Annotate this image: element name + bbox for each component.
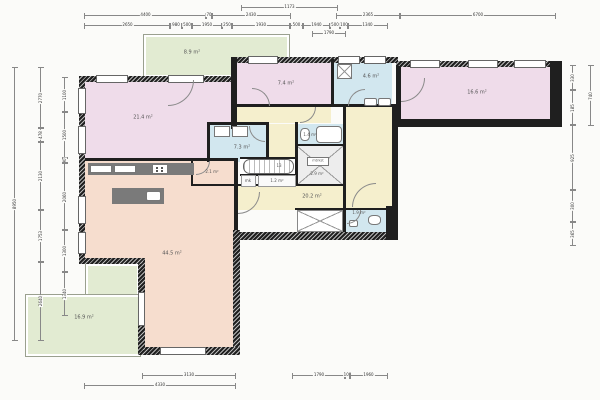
dimension: 6700: [401, 15, 555, 16]
dimension: 2650: [85, 25, 170, 26]
dimension: 2770: [40, 68, 41, 128]
wall: [343, 210, 346, 232]
stairs: [243, 159, 294, 174]
toilet-bowl: [368, 215, 381, 225]
meter-box-label: mk: [245, 179, 251, 183]
wall: [235, 232, 397, 240]
dimension: 1173: [242, 7, 337, 8]
washing-machine: [232, 126, 248, 137]
wall: [550, 61, 562, 127]
room-label-toilet: 1.9 m²: [352, 211, 365, 215]
window: [468, 60, 498, 68]
window: [160, 347, 206, 355]
dimension: 1790: [293, 375, 345, 376]
room-label-pantry: 2.1 m²: [205, 170, 218, 174]
room-label-hallway: 20.2 m²: [302, 195, 322, 200]
room-label-bath-tub: 1.4 m²: [303, 133, 316, 137]
room-label-storage: 2.9 m²: [310, 172, 323, 176]
dimension: 1500: [64, 112, 65, 158]
wall: [85, 158, 235, 161]
washing-machine: [214, 126, 230, 137]
dimension: 1940: [303, 25, 330, 26]
wall: [386, 206, 398, 240]
window: [338, 56, 360, 64]
wardrobe: [297, 210, 343, 232]
dimension: 740: [590, 66, 591, 125]
wall: [295, 144, 345, 146]
cooktop-burner: [156, 167, 158, 169]
floor-plan: 8.9 m² 21.4 m² 7.4 m² 4.6 m² 16.6 m² 7.3…: [0, 0, 600, 400]
room-bedroom-left: [85, 128, 209, 161]
wall: [191, 184, 235, 186]
dimension: 1950: [192, 25, 222, 26]
dimension: 185: [572, 90, 573, 125]
dimension: 925: [572, 125, 573, 190]
dimension: 2365: [337, 15, 399, 16]
room-label-shower-room: 7.3 m²: [234, 146, 250, 151]
wall: [343, 107, 346, 210]
window: [78, 88, 86, 114]
dimension: 2130: [40, 142, 41, 210]
stairs-count-label: 13: [276, 164, 281, 168]
wall: [207, 122, 269, 125]
window: [78, 126, 86, 154]
dimension: 300: [572, 190, 573, 222]
dimension: 478: [40, 128, 41, 142]
window: [78, 196, 86, 224]
window: [78, 232, 86, 254]
wall: [331, 59, 334, 107]
dimension: 4400: [85, 15, 206, 16]
wall: [79, 258, 143, 264]
washbasin: [378, 98, 391, 106]
dimension: 8950: [14, 68, 15, 340]
dimension: 1930: [232, 25, 290, 26]
dimension: 4330: [85, 385, 235, 386]
bathtub: [316, 126, 342, 143]
window: [138, 292, 145, 326]
dimension: 1753: [40, 210, 41, 262]
door-arc: [238, 192, 260, 214]
kitchen-cabinet: [114, 165, 136, 173]
wall: [266, 122, 269, 162]
wall: [233, 230, 240, 354]
room-label-terrace-top: 8.9 m²: [184, 51, 200, 56]
window: [248, 56, 278, 64]
wall: [398, 119, 556, 127]
wall: [207, 122, 210, 162]
dimension: 330: [572, 66, 573, 90]
dimension: 1100: [64, 78, 65, 112]
window: [364, 56, 386, 64]
meter-cabinet-label: mtrkst: [312, 159, 323, 163]
dimension: 1340: [348, 25, 387, 26]
kitchen-sink: [146, 191, 161, 201]
dimension: 2640: [40, 262, 41, 340]
room-label-closet: 1.2 m²: [270, 179, 283, 183]
dimension: 1340: [64, 272, 65, 315]
room-hallway: [237, 107, 331, 123]
cooktop: [152, 164, 168, 174]
room-label-terrace-garden: 16.9 m²: [74, 316, 94, 321]
washbasin: [364, 98, 377, 106]
dimension: 2060: [64, 163, 65, 230]
room-living-kitchen: [85, 161, 235, 258]
room-label-bathroom-main: 4.6 m²: [363, 75, 379, 80]
room-label-bedroom-mid: 7.4 m²: [278, 82, 294, 87]
room-label-bedroom-left: 21.4 m²: [133, 116, 153, 121]
dimension: 1960: [350, 375, 387, 376]
dimension: 365: [572, 222, 573, 245]
shower: [337, 64, 352, 79]
room-label-bedroom-right: 16.6 m²: [467, 91, 487, 96]
room-living-kitchen: [143, 257, 235, 348]
wall: [231, 57, 237, 129]
dimension: 2430: [212, 15, 290, 16]
room-label-living: 44.5 m²: [162, 252, 182, 257]
window: [96, 75, 128, 83]
dimension: 1790: [313, 33, 345, 34]
window: [514, 60, 546, 68]
window: [410, 60, 440, 68]
dimension: 1300: [64, 230, 65, 272]
kitchen-cabinet: [90, 165, 112, 173]
dimension: 3130: [143, 375, 235, 376]
